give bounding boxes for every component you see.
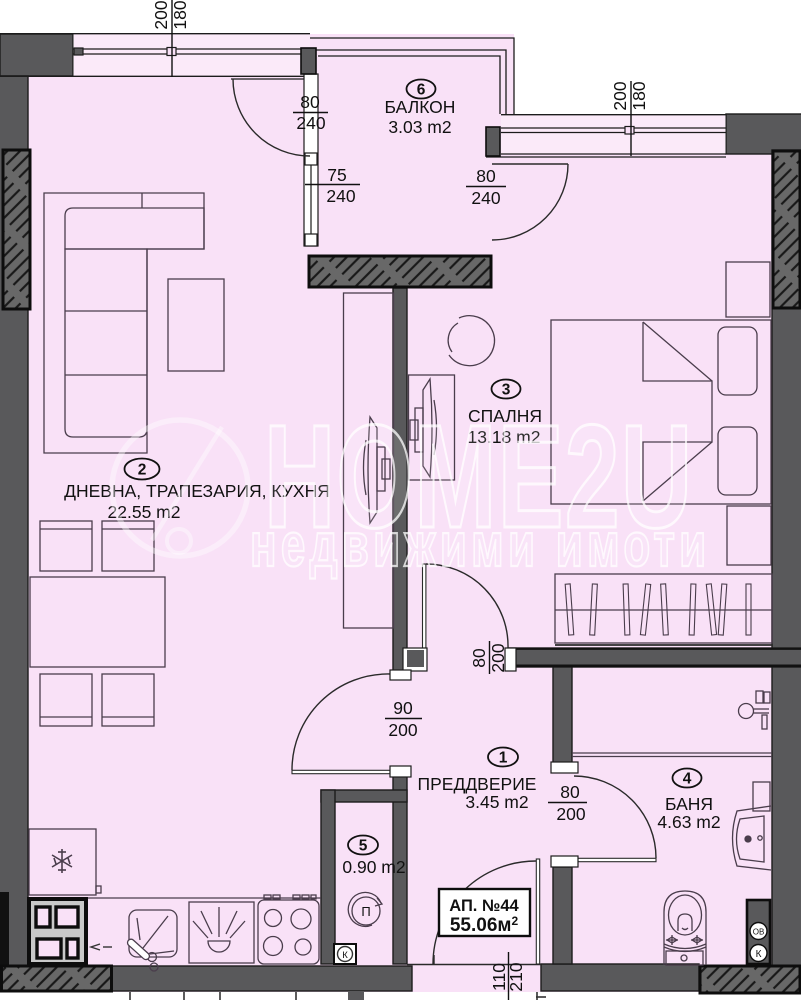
svg-text:80: 80 xyxy=(560,782,580,802)
svg-text:К: К xyxy=(342,950,348,961)
svg-text:80: 80 xyxy=(476,166,496,186)
svg-text:55.06м2: 55.06м2 xyxy=(450,914,519,936)
svg-text:БАНЯ: БАНЯ xyxy=(665,794,713,814)
svg-text:П: П xyxy=(361,904,370,919)
svg-text:БАЛКОН: БАЛКОН xyxy=(385,97,456,117)
svg-text:2: 2 xyxy=(138,462,147,479)
svg-text:4: 4 xyxy=(683,771,692,788)
svg-text:200: 200 xyxy=(488,643,508,672)
svg-text:80: 80 xyxy=(469,648,489,668)
svg-text:ПРЕДДВЕРИЕ: ПРЕДДВЕРИЕ xyxy=(418,774,537,794)
svg-text:недвижими имоти: недвижими имоти xyxy=(250,511,711,580)
svg-text:240: 240 xyxy=(326,186,355,206)
svg-text:200: 200 xyxy=(151,0,171,29)
svg-text:240: 240 xyxy=(296,113,325,133)
svg-text:180: 180 xyxy=(170,0,190,29)
svg-text:90: 90 xyxy=(393,698,413,718)
svg-text:0.90 m2: 0.90 m2 xyxy=(342,857,405,877)
svg-text:5: 5 xyxy=(359,838,368,855)
svg-text:4.63 m2: 4.63 m2 xyxy=(657,812,720,832)
svg-text:1: 1 xyxy=(499,750,508,767)
svg-text:180: 180 xyxy=(629,81,649,110)
svg-text:3.45 m2: 3.45 m2 xyxy=(465,792,528,812)
svg-text:200: 200 xyxy=(610,81,630,110)
svg-text:75: 75 xyxy=(327,165,346,185)
svg-text:240: 240 xyxy=(471,188,500,208)
svg-text:200: 200 xyxy=(388,720,417,740)
svg-text:3.03 m2: 3.03 m2 xyxy=(388,117,451,137)
svg-text:ОВ: ОВ xyxy=(753,928,765,937)
svg-text:80: 80 xyxy=(300,92,320,112)
svg-text:6: 6 xyxy=(417,82,426,99)
svg-text:АП. №44: АП. №44 xyxy=(449,897,519,915)
svg-text:200: 200 xyxy=(556,804,585,824)
svg-text:К: К xyxy=(756,949,762,960)
